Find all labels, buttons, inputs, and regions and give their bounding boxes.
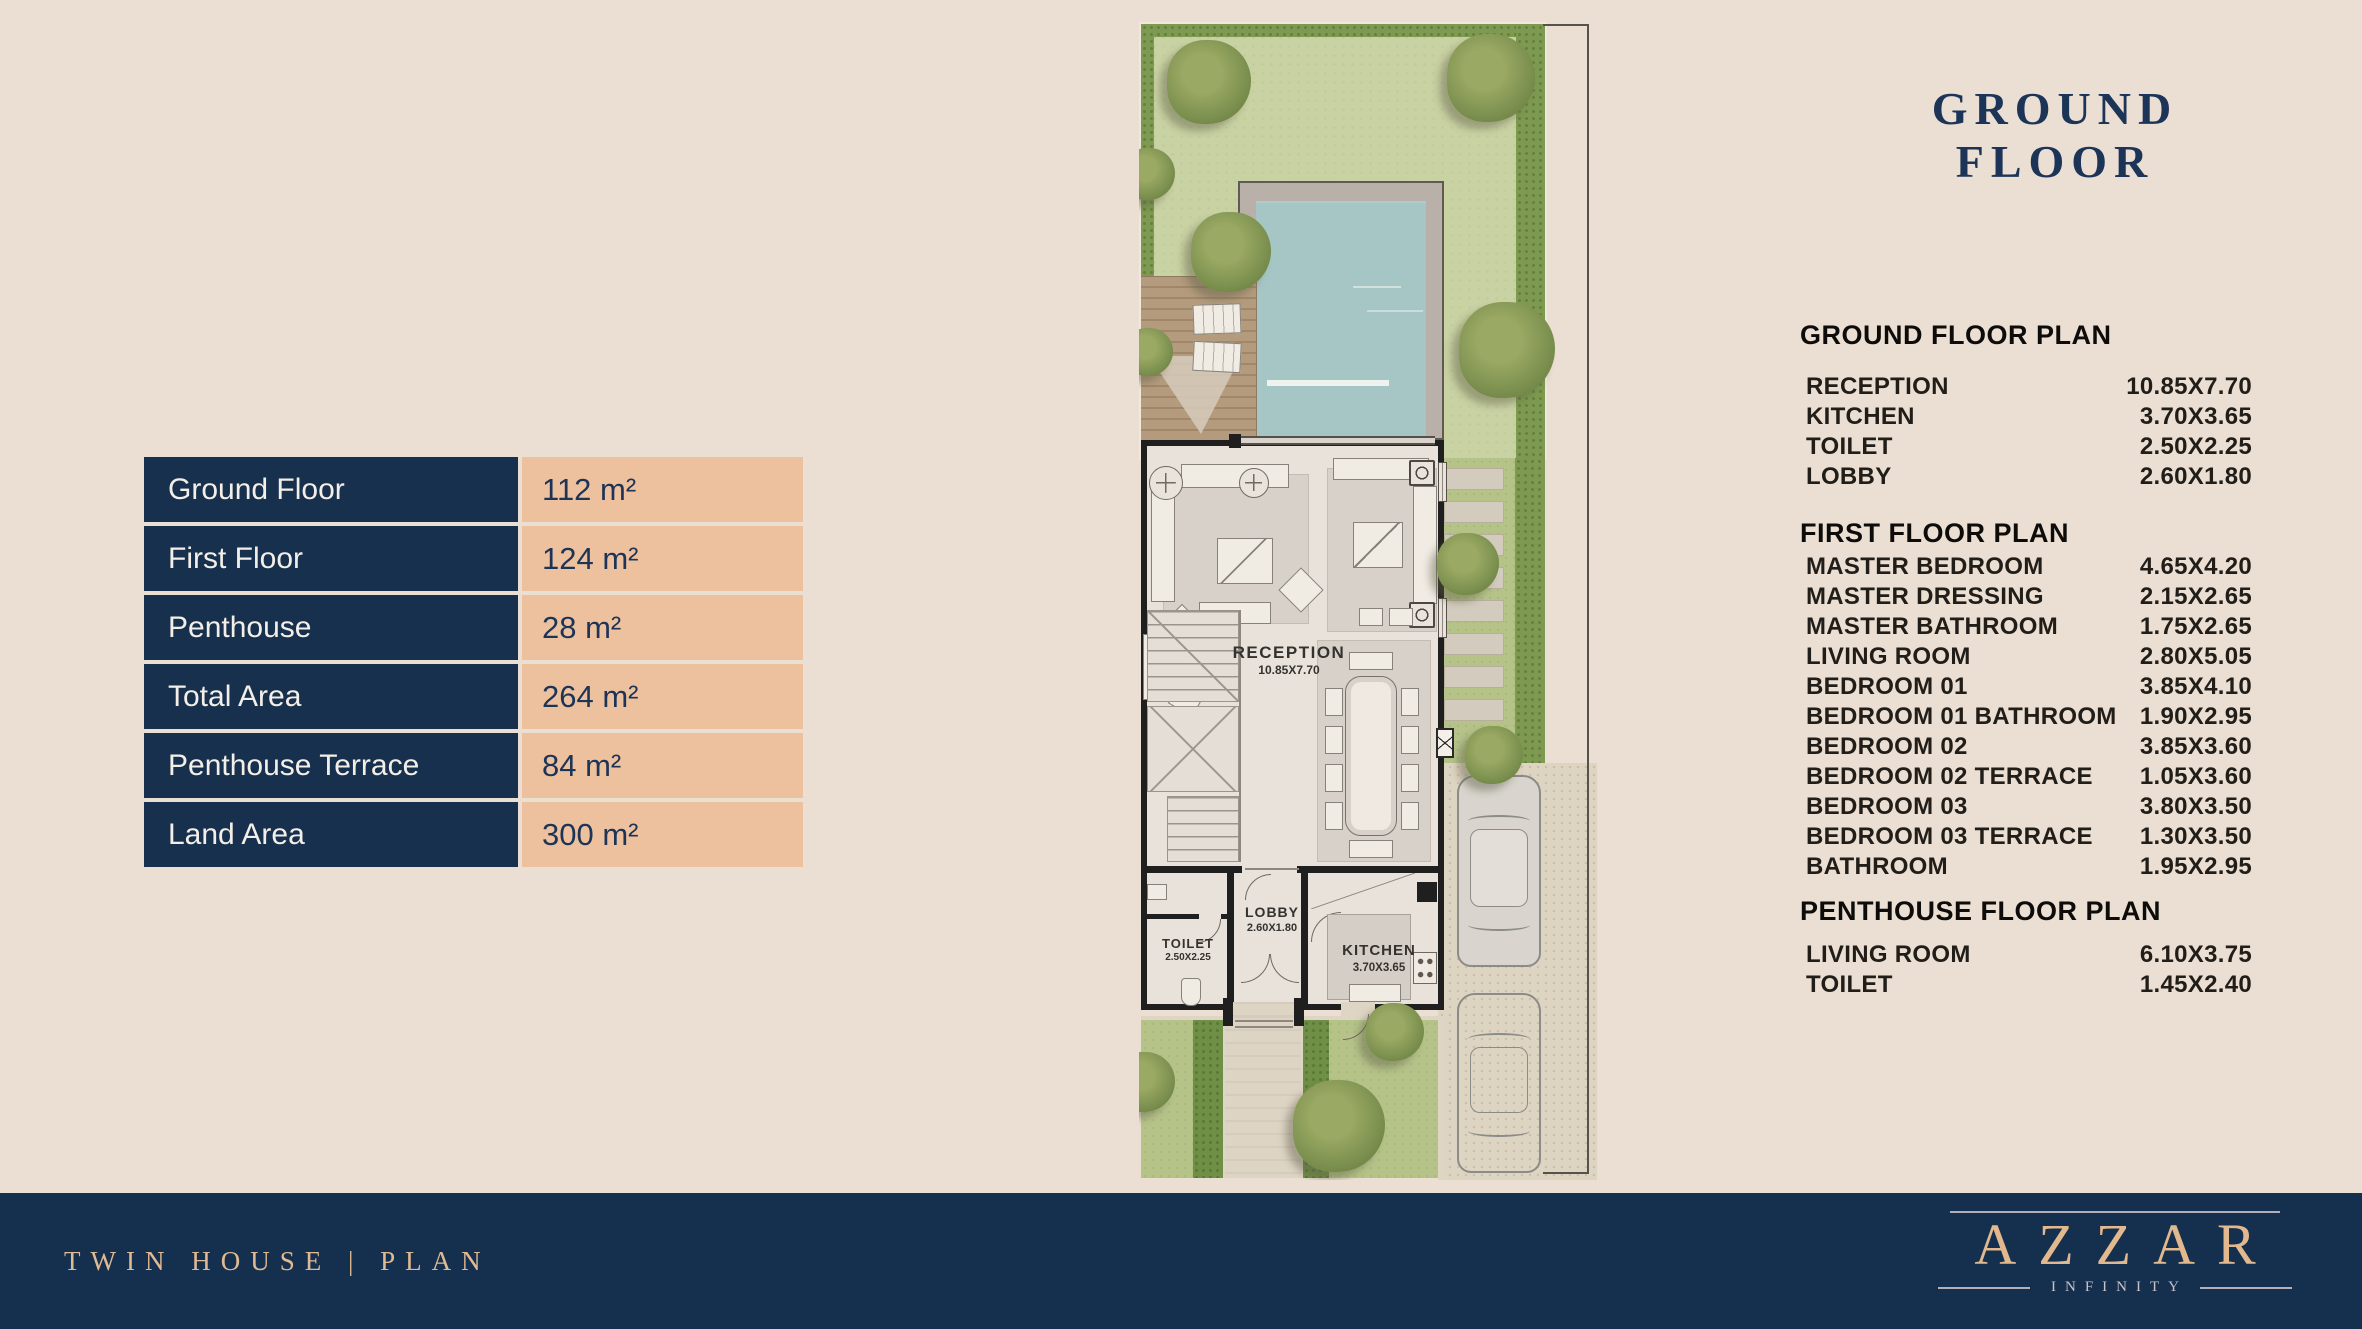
chair xyxy=(1359,608,1383,626)
room-row: LOBBY2.60X1.80 xyxy=(1800,462,2252,492)
room-dim: 3.70X3.65 xyxy=(2140,403,2252,431)
side-table xyxy=(1149,466,1183,500)
room-dim: 4.65X4.20 xyxy=(2140,553,2252,581)
room-name: MASTER DRESSING xyxy=(1806,583,2044,611)
room-dim: 1.90X2.95 xyxy=(2140,703,2252,731)
room-name: BEDROOM 01 BATHROOM xyxy=(1806,703,2117,731)
table-row-value: 84 m² xyxy=(522,733,803,798)
table-row-label: Penthouse Terrace xyxy=(144,733,518,798)
sink xyxy=(1147,884,1167,900)
boundary-line xyxy=(1587,24,1589,1174)
dining-chair xyxy=(1401,764,1419,792)
room-name: BEDROOM 02 TERRACE xyxy=(1806,763,2093,791)
car-graphic xyxy=(1457,993,1541,1173)
room-name: LOBBY xyxy=(1237,904,1307,922)
lobby-label: LOBBY 2.60X1.80 xyxy=(1237,904,1307,935)
pool-lap-line xyxy=(1267,380,1389,386)
dining-chair xyxy=(1325,688,1343,716)
room-dim: 1.45X2.40 xyxy=(2140,971,2252,999)
room-row: TOILET2.50X2.25 xyxy=(1800,432,2252,462)
pool xyxy=(1256,201,1426,440)
sun-lounger xyxy=(1192,341,1242,373)
room-dim: 2.50X2.25 xyxy=(1147,952,1229,965)
dining-chair xyxy=(1325,802,1343,830)
utility-box xyxy=(1436,728,1454,758)
sofa xyxy=(1151,490,1175,602)
table-row-label: Total Area xyxy=(144,664,518,729)
room-name: RECEPTION xyxy=(1806,373,1949,401)
dining-chair xyxy=(1325,726,1343,754)
toilet-wc xyxy=(1181,978,1201,1006)
floor-plan-drawing: RECEPTION 10.85X7.70 LOBBY 2.60X1.80 TOI… xyxy=(1139,18,1597,1180)
dining-chair xyxy=(1325,764,1343,792)
room-dim: 3.80X3.50 xyxy=(2140,793,2252,821)
room-row: TOILET1.45X2.40 xyxy=(1800,970,2252,1000)
room-name: LOBBY xyxy=(1806,463,1892,491)
hedge xyxy=(1515,458,1545,763)
room-name: TOILET xyxy=(1806,971,1893,999)
room-name: KITCHEN xyxy=(1806,403,1915,431)
room-name: BEDROOM 03 TERRACE xyxy=(1806,823,2093,851)
room-dim: 1.75X2.65 xyxy=(2140,613,2252,641)
sun-lounger xyxy=(1192,303,1241,335)
stepping-stone xyxy=(1444,633,1504,655)
brand-logo: AZZAR INFINITY xyxy=(1948,1211,2282,1296)
room-dim: 2.15X2.65 xyxy=(2140,583,2252,611)
room-row: RECEPTION10.85X7.70 xyxy=(1800,372,2252,402)
kitchen-counter xyxy=(1349,984,1401,1002)
room-name: LIVING ROOM xyxy=(1806,941,1971,969)
table-row-value: 264 m² xyxy=(522,664,803,729)
room-name: BEDROOM 02 xyxy=(1806,733,1968,761)
wall xyxy=(1301,866,1308,1010)
entrance-step xyxy=(1235,1020,1293,1022)
stepping-stone xyxy=(1444,699,1504,721)
wall xyxy=(1141,914,1199,919)
door-opening xyxy=(1232,1002,1294,1016)
room-dim: 1.95X2.95 xyxy=(2140,853,2252,881)
room-dim: 1.30X3.50 xyxy=(2140,823,2252,851)
entrance-walkway xyxy=(1225,1016,1301,1178)
wall xyxy=(1294,998,1304,1026)
room-row: KITCHEN3.70X3.65 xyxy=(1800,402,2252,432)
car-graphic xyxy=(1457,775,1541,967)
table-row-label: Penthouse xyxy=(144,595,518,660)
room-dim: 10.85X7.70 xyxy=(2126,373,2252,401)
wall xyxy=(1221,914,1229,919)
room-name: MASTER BATHROOM xyxy=(1806,613,2058,641)
stepping-stone xyxy=(1444,600,1504,622)
sofa xyxy=(1413,486,1437,604)
room-dim: 2.60X1.80 xyxy=(2140,463,2252,491)
page-title: GROUND FLOOR xyxy=(1850,82,2260,188)
table-row-value: 124 m² xyxy=(522,526,803,591)
room-dimension-panel: GROUND FLOOR PLAN RECEPTION10.85X7.70 KI… xyxy=(1800,318,2252,1000)
kitchen-label: KITCHEN 3.70X3.65 xyxy=(1333,942,1425,975)
room-row: BATHROOM1.95X2.95 xyxy=(1800,852,2252,882)
room-row: MASTER BATHROOM1.75X2.65 xyxy=(1800,612,2252,642)
sliding-glass-wall xyxy=(1239,436,1435,445)
side-table xyxy=(1239,468,1269,498)
room-name: RECEPTION xyxy=(1209,642,1369,663)
window xyxy=(1438,598,1447,638)
brand-name: AZZAR xyxy=(1952,1213,2277,1277)
room-list: RECEPTION10.85X7.70 KITCHEN3.70X3.65 TOI… xyxy=(1800,372,2252,492)
dining-chair xyxy=(1401,802,1419,830)
section-heading: GROUND FLOOR PLAN xyxy=(1800,318,2252,352)
room-dim: 3.85X4.10 xyxy=(2140,673,2252,701)
room-dim: 6.10X3.75 xyxy=(2140,941,2252,969)
staircase xyxy=(1167,796,1239,862)
room-dim: 2.50X2.25 xyxy=(2140,433,2252,461)
dining-chair xyxy=(1401,688,1419,716)
dining-chair xyxy=(1401,726,1419,754)
planter xyxy=(1409,460,1435,486)
room-dim: 2.60X1.80 xyxy=(1237,922,1307,936)
room-row: LIVING ROOM2.80X5.05 xyxy=(1800,642,2252,672)
brand-subtitle-row: INFINITY xyxy=(1938,1279,2292,1296)
room-row: BEDROOM 023.85X3.60 xyxy=(1800,732,2252,762)
logo-rule xyxy=(2200,1287,2292,1289)
boundary-line xyxy=(1543,24,1589,26)
window xyxy=(1438,462,1447,502)
pool-reflection xyxy=(1367,310,1423,312)
room-dim: 10.85X7.70 xyxy=(1209,663,1369,678)
stepping-stone xyxy=(1444,501,1504,523)
brand-subtitle: INFINITY xyxy=(2042,1279,2188,1296)
room-row: BEDROOM 02 TERRACE1.05X3.60 xyxy=(1800,762,2252,792)
room-dim: 3.70X3.65 xyxy=(1333,961,1425,975)
pool-reflection xyxy=(1353,286,1401,288)
room-name: KITCHEN xyxy=(1333,942,1425,961)
room-row: BEDROOM 03 TERRACE1.30X3.50 xyxy=(1800,822,2252,852)
room-name: TOILET xyxy=(1806,433,1893,461)
stepping-stone xyxy=(1444,468,1504,490)
table-row-value: 28 m² xyxy=(522,595,803,660)
table-row-label: Land Area xyxy=(144,802,518,867)
room-name: BEDROOM 03 xyxy=(1806,793,1968,821)
room-row: MASTER BEDROOM4.65X4.20 xyxy=(1800,552,2252,582)
room-row: BEDROOM 013.85X4.10 xyxy=(1800,672,2252,702)
door-opening xyxy=(1245,868,1299,870)
reception-label: RECEPTION 10.85X7.70 xyxy=(1209,642,1369,678)
table-row-value: 300 m² xyxy=(522,802,803,867)
dining-table xyxy=(1345,676,1397,836)
section-heading: FIRST FLOOR PLAN xyxy=(1800,516,2252,550)
footer-caption: TWIN HOUSE | PLAN xyxy=(64,1193,491,1329)
coffee-table xyxy=(1353,522,1403,568)
room-name: BEDROOM 01 xyxy=(1806,673,1968,701)
counter-line xyxy=(1311,873,1415,909)
room-row: BEDROOM 033.80X3.50 xyxy=(1800,792,2252,822)
hedge xyxy=(1193,1020,1223,1178)
table-row-label: First Floor xyxy=(144,526,518,591)
brochure-page: Ground Floor 112 m² First Floor 124 m² P… xyxy=(0,0,2362,1329)
room-name: TOILET xyxy=(1147,936,1229,952)
room-dim: 3.85X3.60 xyxy=(2140,733,2252,761)
sofa xyxy=(1181,464,1289,488)
room-row: LIVING ROOM6.10X3.75 xyxy=(1800,940,2252,970)
table-row-value: 112 m² xyxy=(522,457,803,522)
room-dim: 2.80X5.05 xyxy=(2140,643,2252,671)
room-dim: 1.05X3.60 xyxy=(2140,763,2252,791)
room-list: MASTER BEDROOM4.65X4.20 MASTER DRESSING2… xyxy=(1800,552,2252,882)
entrance-step xyxy=(1235,1026,1293,1028)
table-row-label: Ground Floor xyxy=(144,457,518,522)
coffee-table xyxy=(1217,538,1273,584)
room-row: MASTER DRESSING2.15X2.65 xyxy=(1800,582,2252,612)
wall xyxy=(1297,866,1444,873)
toilet-label: TOILET 2.50X2.25 xyxy=(1147,936,1229,965)
staircase-landing xyxy=(1147,706,1239,792)
wall xyxy=(1229,434,1241,448)
footer-bar: TWIN HOUSE | PLAN AZZAR INFINITY xyxy=(0,1193,2362,1329)
wall xyxy=(1417,882,1437,902)
room-name: LIVING ROOM xyxy=(1806,643,1971,671)
room-list: LIVING ROOM6.10X3.75 TOILET1.45X2.40 xyxy=(1800,940,2252,1000)
chair xyxy=(1389,608,1413,626)
wall xyxy=(1223,998,1233,1026)
room-row: BEDROOM 01 BATHROOM1.90X2.95 xyxy=(1800,702,2252,732)
logo-rule xyxy=(1938,1287,2030,1289)
room-name: MASTER BEDROOM xyxy=(1806,553,2044,581)
section-heading: PENTHOUSE FLOOR PLAN xyxy=(1800,894,2252,928)
stepping-stone xyxy=(1444,666,1504,688)
room-name: BATHROOM xyxy=(1806,853,1948,881)
boundary-line xyxy=(1543,1172,1589,1174)
dining-chair xyxy=(1349,840,1393,858)
